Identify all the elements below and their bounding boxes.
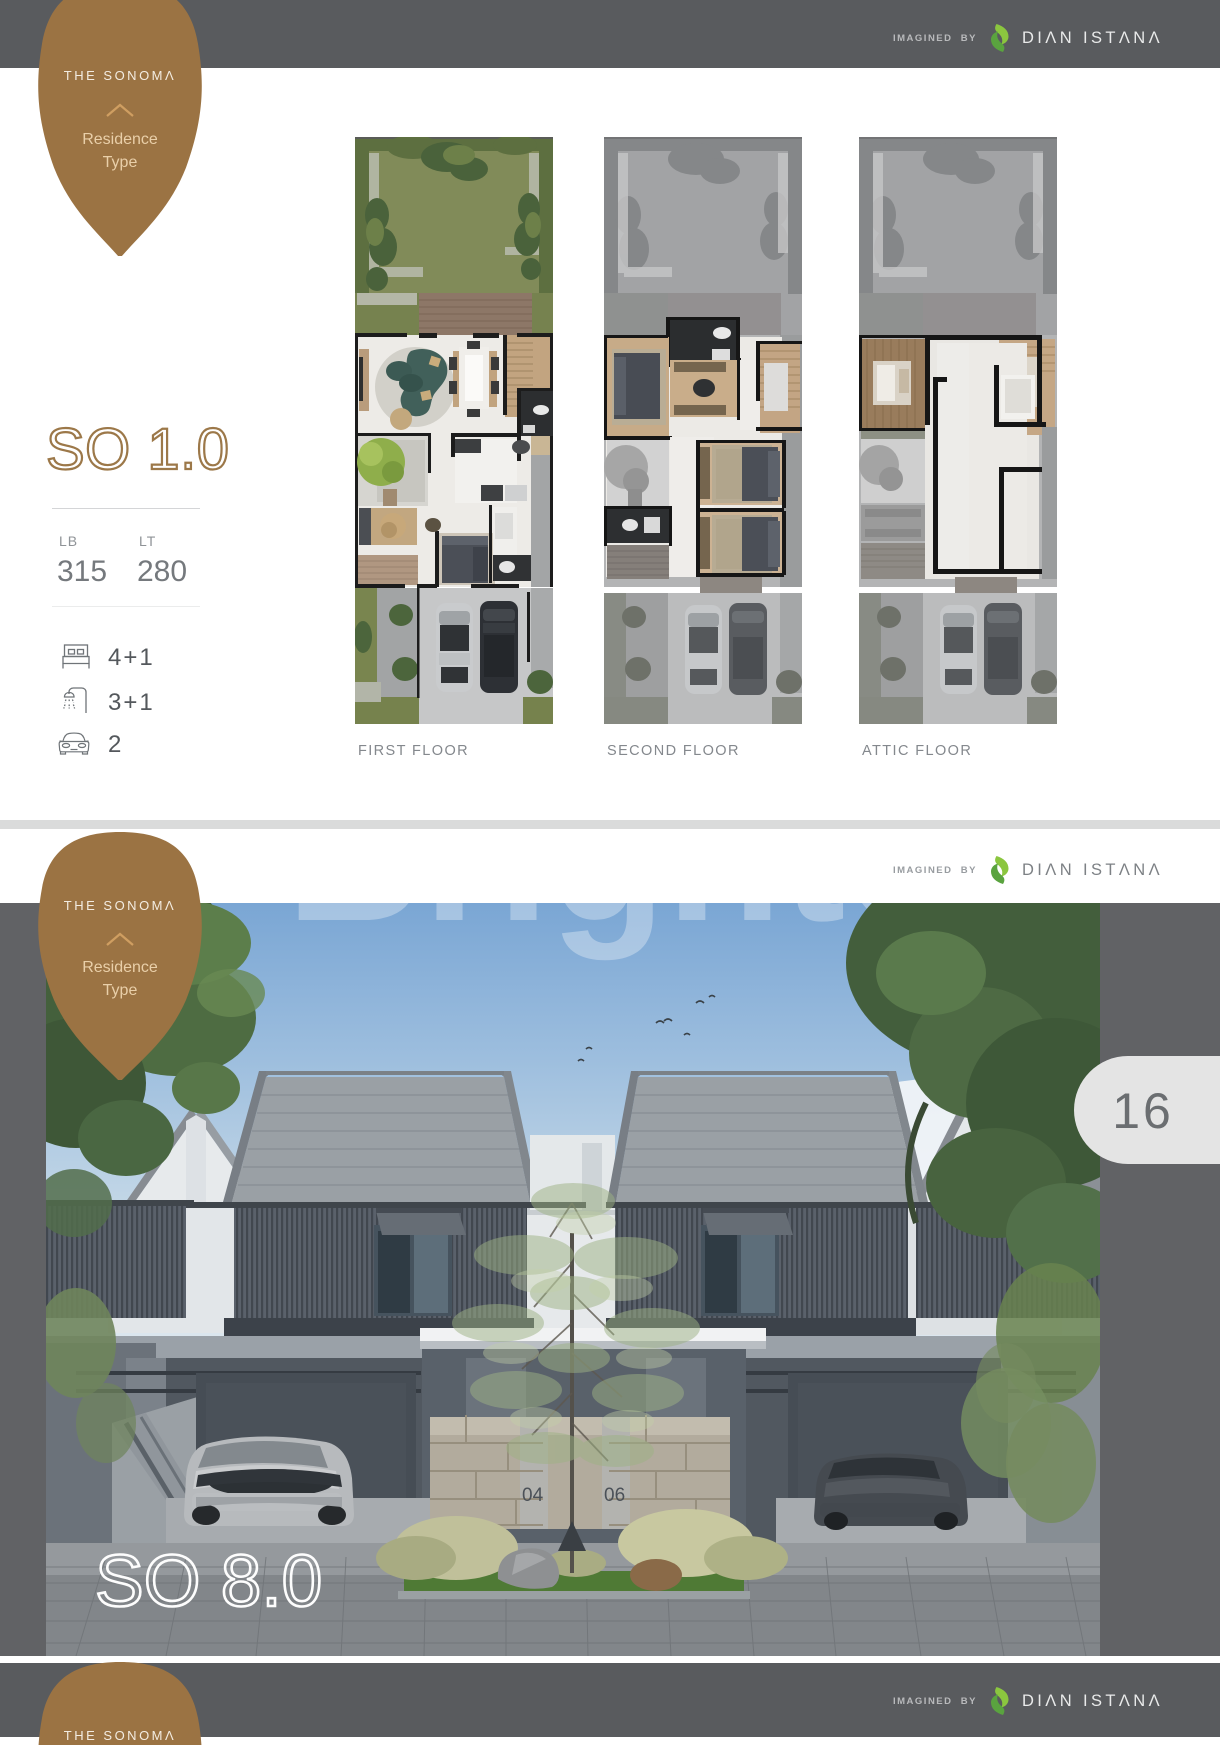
svg-text:04: 04 bbox=[522, 1485, 544, 1506]
svg-text:06: 06 bbox=[604, 1485, 625, 1506]
